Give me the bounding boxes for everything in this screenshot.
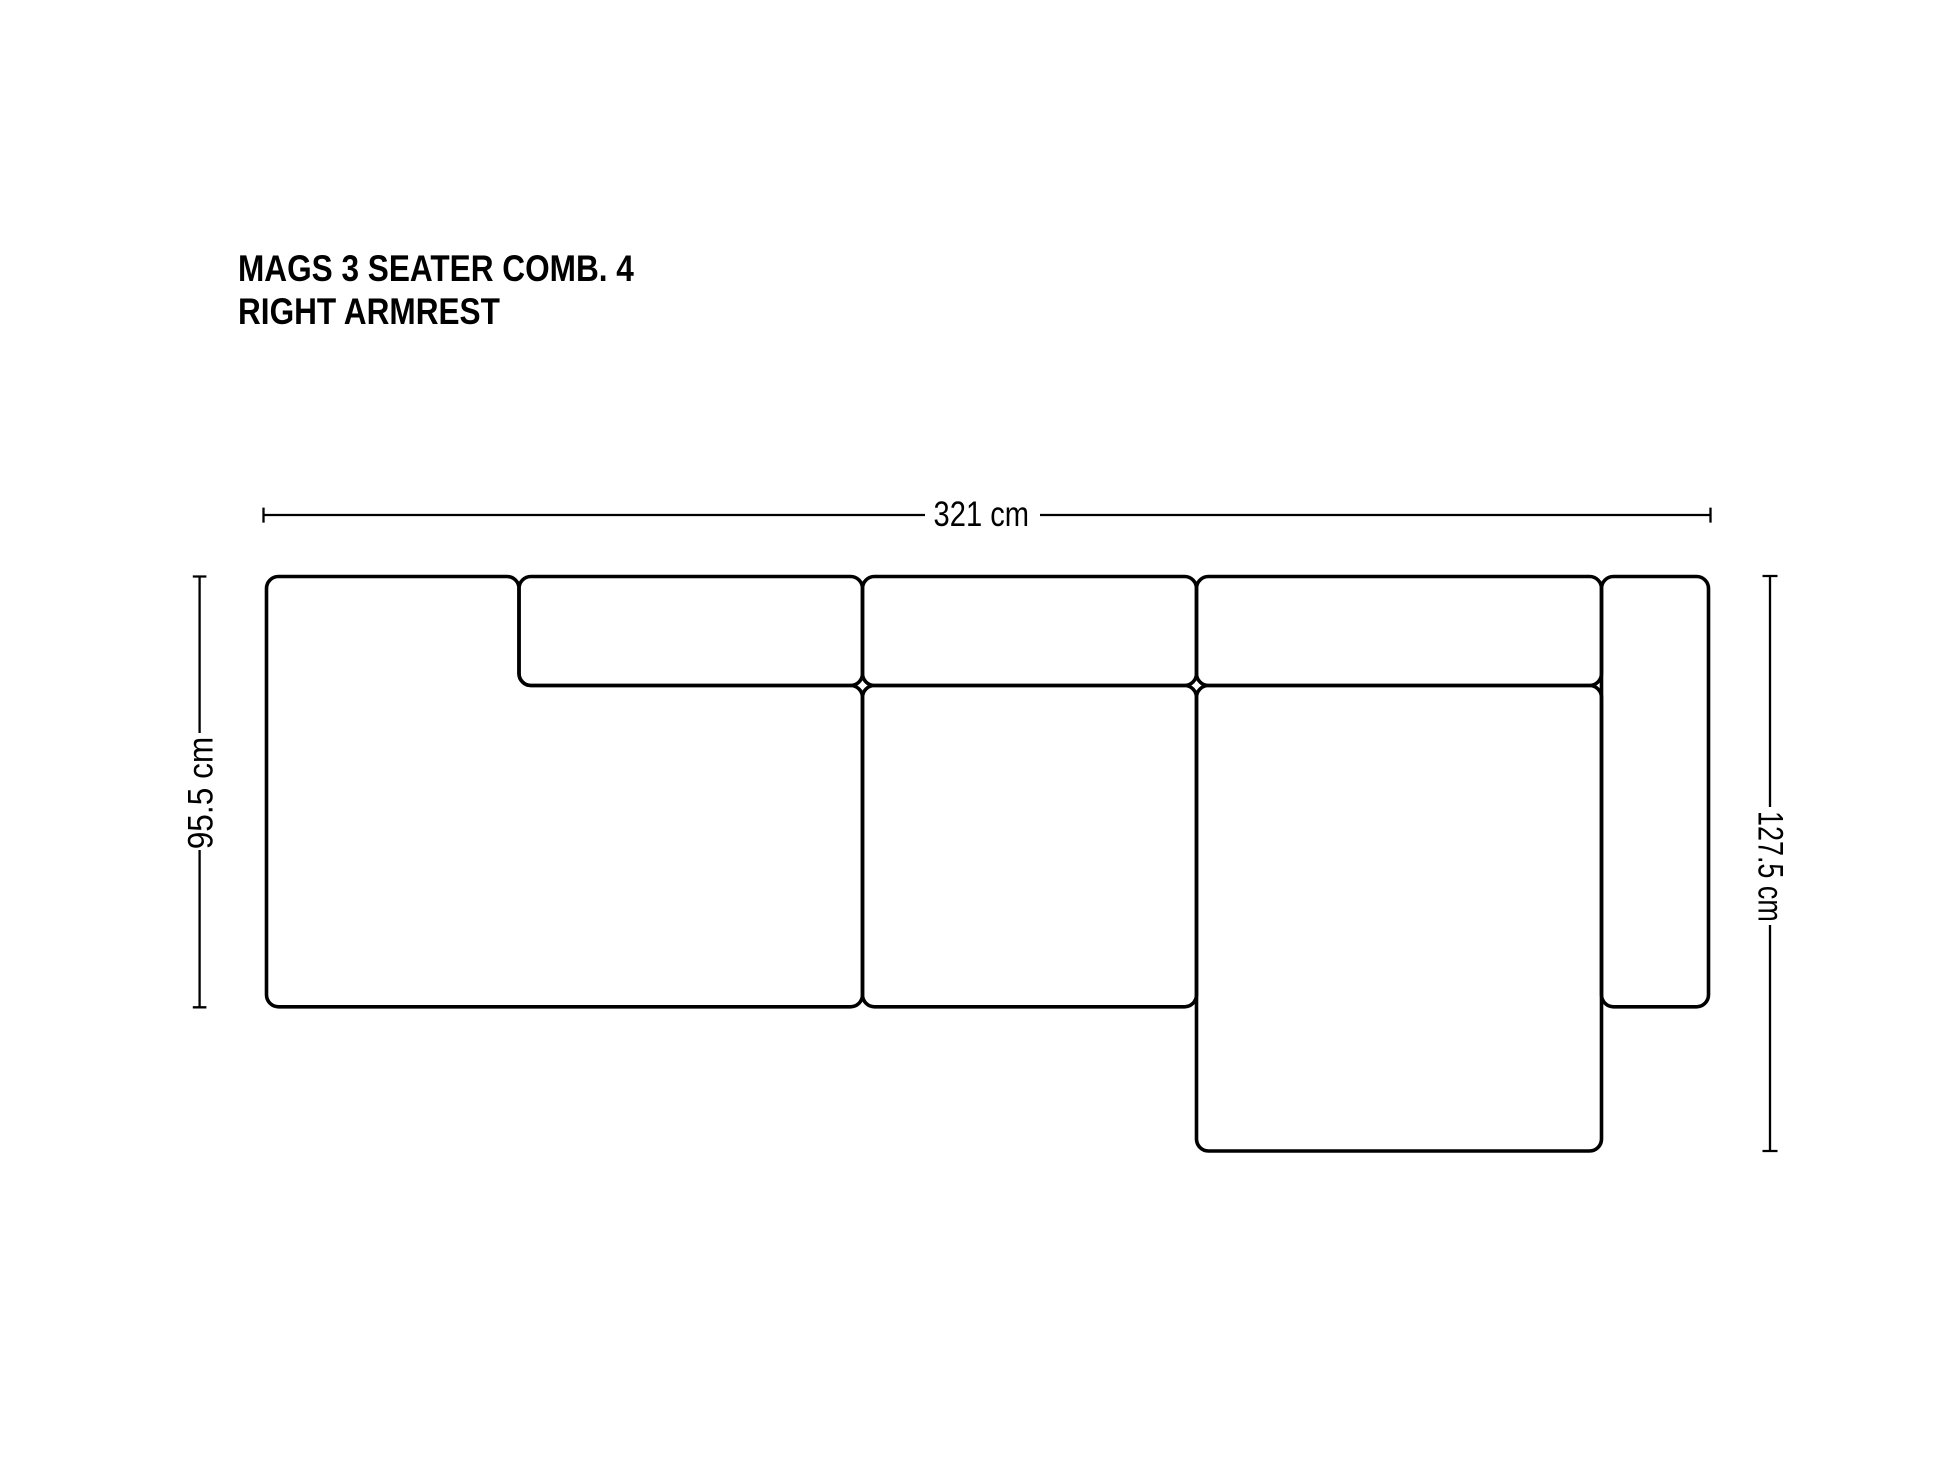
svg-text:127.5 cm: 127.5 cm xyxy=(1751,811,1790,922)
svg-text:MAGS 3 SEATER COMB. 4: MAGS 3 SEATER COMB. 4 xyxy=(238,249,634,290)
svg-text:321 cm: 321 cm xyxy=(934,494,1029,533)
svg-text:95.5 cm: 95.5 cm xyxy=(182,737,221,850)
svg-text:RIGHT ARMREST: RIGHT ARMREST xyxy=(238,292,500,333)
